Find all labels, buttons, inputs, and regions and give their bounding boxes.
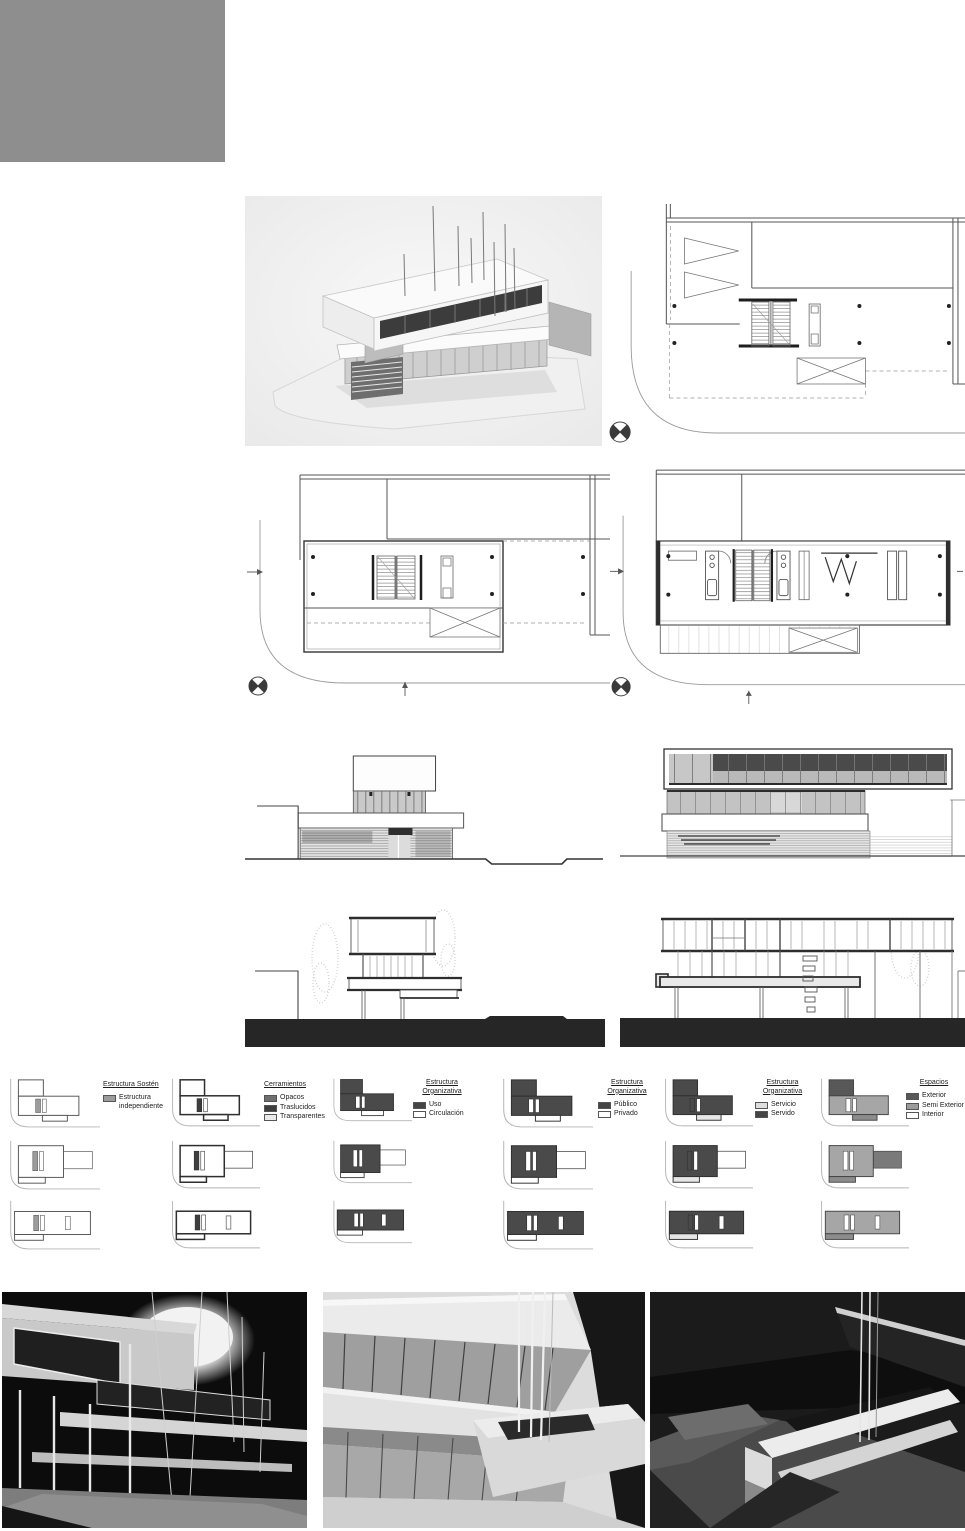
analysis-mini-plan [815, 1139, 909, 1195]
diagram-column-publico [497, 1075, 593, 1267]
legend-estructura-organizativa-publico: Estructura Organizativa Público Privado [598, 1079, 656, 1120]
north-arrow-icon [249, 677, 267, 695]
analysis-mini-plan [497, 1077, 593, 1135]
analysis-mini-plan [166, 1139, 260, 1195]
north-arrow-icon [612, 678, 630, 696]
diagram-column-espacios [815, 1075, 909, 1267]
diagram-column-sosten [4, 1075, 100, 1267]
analysis-mini-plan [659, 1199, 753, 1263]
legend-title: Estructura Organizativa [598, 1079, 656, 1097]
legend-item: Estructura independiente [103, 1094, 165, 1112]
model-photo-overview [245, 196, 602, 446]
section-longitudinal [620, 888, 965, 1048]
elevation-street [245, 718, 603, 878]
plan-second-floor [608, 460, 965, 708]
legend-title: Estructura Organizativa [413, 1079, 471, 1097]
analysis-mini-plan [4, 1077, 100, 1135]
analysis-mini-plan [659, 1139, 753, 1195]
analysis-mini-plan [497, 1199, 593, 1263]
legend-swatch [598, 1102, 611, 1109]
legend-espacios: Espacios Exterior Semi Exterior Interior [906, 1079, 962, 1121]
model-photo-facade-closeup [323, 1292, 645, 1528]
legend-swatch [413, 1102, 426, 1109]
legend-swatch [906, 1093, 919, 1100]
legend-item: Exterior [906, 1092, 962, 1101]
analysis-mini-plan [4, 1199, 100, 1263]
legend-swatch [906, 1103, 919, 1110]
legend-estructura-sosten: Estructura Sostén Estructura independien… [103, 1081, 165, 1112]
model-photo-night-exterior [2, 1292, 307, 1528]
legend-swatch [598, 1111, 611, 1118]
legend-swatch [103, 1095, 116, 1102]
analysis-mini-plan [4, 1139, 100, 1195]
legend-swatch [755, 1111, 768, 1118]
legend-item: Circulación [413, 1110, 471, 1119]
section-transverse [245, 888, 605, 1048]
legend-item: Público [598, 1101, 656, 1110]
legend-item: Interior [906, 1111, 962, 1120]
analysis-mini-plan [166, 1199, 260, 1263]
north-arrow-icon [610, 422, 630, 442]
legend-swatch [264, 1095, 277, 1102]
plan-ground-floor [606, 196, 965, 446]
legend-title: Estructura Organizativa [755, 1079, 810, 1097]
diagram-column-cerramientos [166, 1075, 260, 1267]
legend-item: Opacos [264, 1094, 326, 1103]
legend-swatch [264, 1114, 277, 1121]
analysis-mini-plan [328, 1199, 412, 1263]
legend-swatch [906, 1112, 919, 1119]
legend-item: Semi Exterior [906, 1102, 962, 1111]
legend-estructura-organizativa-uso: Estructura Organizativa Uso Circulación [413, 1079, 471, 1120]
legend-item: Servido [755, 1110, 810, 1119]
analysis-mini-plan [815, 1077, 909, 1135]
legend-swatch [755, 1102, 768, 1109]
diagram-column-uso [328, 1075, 412, 1267]
analysis-mini-plan [166, 1077, 260, 1135]
legend-item: Transparentes [264, 1113, 326, 1122]
diagram-column-servicio [659, 1075, 753, 1267]
analysis-mini-plan [815, 1199, 909, 1263]
legend-cerramientos: Cerramientos Opacos Traslucidos Transpar… [264, 1081, 326, 1123]
legend-title: Estructura Sostén [103, 1081, 165, 1090]
analysis-mini-plan [328, 1077, 412, 1135]
legend-swatch [413, 1111, 426, 1118]
legend-item: Uso [413, 1101, 471, 1110]
legend-title: Espacios [906, 1079, 962, 1088]
legend-item: Servicio [755, 1101, 810, 1110]
legend-item: Traslucidos [264, 1104, 326, 1113]
model-photo-roof-closeup [650, 1292, 965, 1528]
plan-first-floor [245, 460, 610, 708]
gray-cover-block [0, 0, 225, 162]
legend-swatch [264, 1105, 277, 1112]
elevation-garden [620, 713, 965, 878]
document-page: Estructura Sostén Estructura independien… [0, 0, 965, 1531]
analysis-diagram-strip: Estructura Sostén Estructura independien… [0, 1075, 965, 1270]
analysis-mini-plan [497, 1139, 593, 1195]
analysis-mini-plan [328, 1139, 412, 1195]
legend-estructura-organizativa-servicio: Estructura Organizativa Servicio Servido [755, 1079, 810, 1120]
legend-title: Cerramientos [264, 1081, 326, 1090]
legend-item: Privado [598, 1110, 656, 1119]
analysis-mini-plan [659, 1077, 753, 1135]
